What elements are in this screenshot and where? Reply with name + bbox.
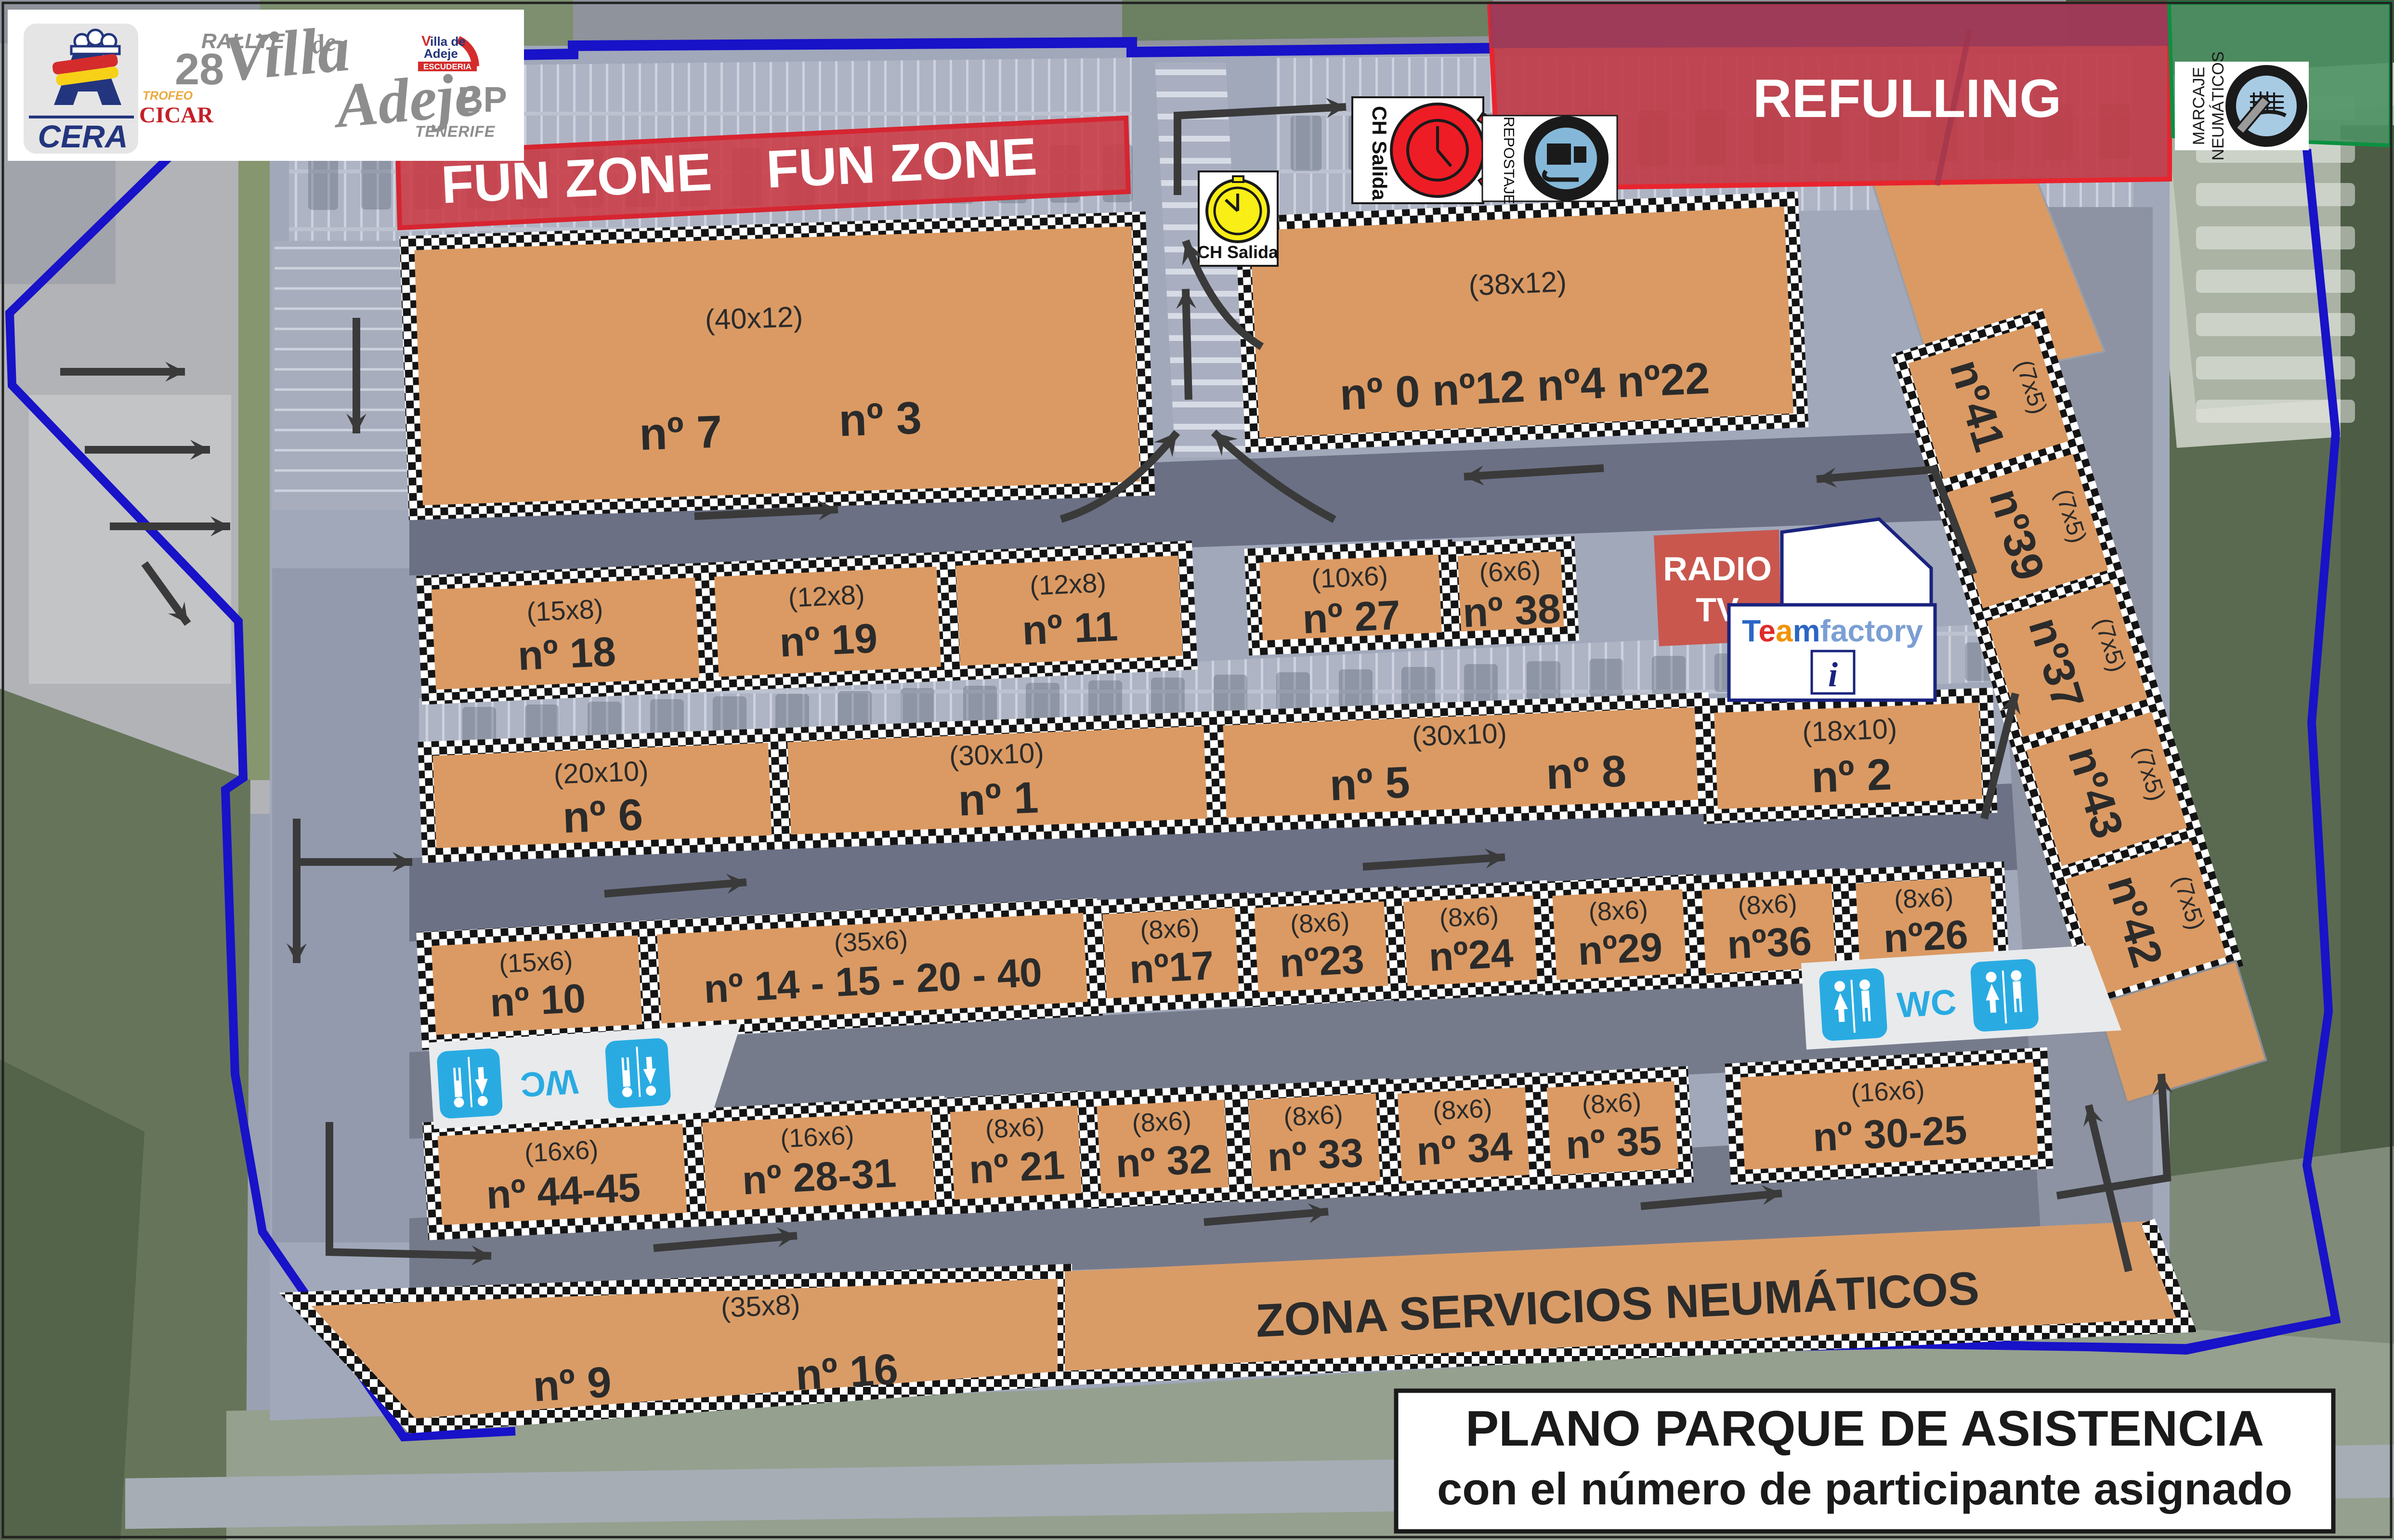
svg-text:nº 27: nº 27	[1301, 592, 1401, 642]
svg-text:i: i	[1828, 655, 1838, 694]
svg-text:(8x6): (8x6)	[1581, 1088, 1642, 1120]
svg-text:RADIO: RADIO	[1663, 550, 1772, 587]
svg-text:nº 33: nº 33	[1266, 1130, 1364, 1180]
svg-text:PLANO PARQUE DE ASISTENCIA: PLANO PARQUE DE ASISTENCIA	[1465, 1401, 2264, 1457]
svg-text:nº 34: nº 34	[1415, 1123, 1514, 1174]
svg-text:28: 28	[175, 45, 224, 94]
svg-text:BP: BP	[458, 79, 507, 119]
svg-text:(10x6): (10x6)	[1311, 560, 1388, 594]
svg-text:MARCAJE: MARCAJE	[2190, 67, 2208, 145]
svg-text:nº 32: nº 32	[1115, 1136, 1213, 1186]
svg-text:nº 28-31: nº 28-31	[741, 1150, 898, 1203]
svg-text:nº29: nº29	[1577, 924, 1663, 974]
svg-text:TENERIFE: TENERIFE	[415, 123, 496, 140]
svg-text:nº 21: nº 21	[968, 1142, 1066, 1192]
svg-text:(6x6): (6x6)	[1478, 555, 1541, 588]
svg-text:nº 38: nº 38	[1462, 586, 1562, 636]
svg-text:con el número de participante: con el número de participante asignado	[1437, 1463, 2292, 1514]
svg-text:nº 3: nº 3	[838, 392, 922, 446]
svg-text:(8x6): (8x6)	[1139, 914, 1200, 945]
svg-text:nº 19: nº 19	[778, 615, 878, 666]
svg-text:(8x6): (8x6)	[1432, 1094, 1493, 1125]
svg-text:(38x12): (38x12)	[1468, 265, 1567, 302]
svg-text:nº23: nº23	[1279, 936, 1365, 986]
svg-text:Adeje: Adeje	[424, 46, 458, 61]
svg-text:(8x6): (8x6)	[1131, 1106, 1192, 1138]
svg-text:nº 9: nº 9	[532, 1358, 613, 1411]
svg-text:(35x8): (35x8)	[720, 1289, 801, 1323]
svg-text:nº17: nº17	[1128, 942, 1215, 992]
svg-text:nº 2: nº 2	[1810, 750, 1892, 802]
svg-text:de: de	[309, 27, 339, 60]
svg-text:nº26: nº26	[1883, 912, 1969, 961]
svg-text:(20x10): (20x10)	[553, 755, 649, 790]
svg-text:Teamfactory: Teamfactory	[1742, 613, 1923, 648]
svg-text:(30x10): (30x10)	[949, 737, 1045, 772]
svg-text:(15x8): (15x8)	[526, 593, 603, 627]
svg-text:REPOSTAJE: REPOSTAJE	[1501, 117, 1518, 204]
svg-text:nº 5: nº 5	[1329, 758, 1411, 810]
svg-text:ESCUDERIA: ESCUDERIA	[423, 62, 471, 71]
svg-text:(30x10): (30x10)	[1412, 718, 1507, 753]
svg-text:(40x12): (40x12)	[705, 300, 804, 336]
svg-text:(35x6): (35x6)	[833, 925, 908, 958]
svg-text:nº 1: nº 1	[957, 773, 1039, 825]
svg-text:nº 10: nº 10	[489, 975, 587, 1025]
svg-text:(12x8): (12x8)	[787, 579, 865, 613]
svg-text:nº24: nº24	[1427, 930, 1514, 980]
svg-text:CH Salida: CH Salida	[1368, 106, 1391, 201]
svg-text:REFULLING: REFULLING	[1753, 68, 2062, 129]
svg-text:nº 7: nº 7	[639, 406, 723, 460]
svg-text:(12x8): (12x8)	[1029, 567, 1107, 601]
svg-text:(8x6): (8x6)	[1588, 895, 1648, 927]
svg-text:nº 30-25: nº 30-25	[1812, 1107, 1968, 1160]
svg-text:(15x6): (15x6)	[498, 946, 574, 979]
svg-text:(16x6): (16x6)	[524, 1135, 599, 1168]
svg-text:(8x6): (8x6)	[1894, 882, 1954, 914]
svg-text:(8x6): (8x6)	[984, 1112, 1045, 1144]
svg-text:nº 18: nº 18	[517, 628, 617, 679]
svg-text:(16x6): (16x6)	[1850, 1075, 1925, 1108]
svg-text:nº 8: nº 8	[1545, 746, 1627, 798]
svg-text:nº 44-45: nº 44-45	[485, 1164, 642, 1217]
svg-text:nº 11: nº 11	[1021, 603, 1119, 654]
svg-text:nº 35: nº 35	[1565, 1118, 1662, 1168]
svg-text:(8x6): (8x6)	[1290, 907, 1350, 939]
svg-text:nº36: nº36	[1726, 918, 1813, 967]
svg-text:CH Salida: CH Salida	[1197, 242, 1279, 262]
svg-text:(18x10): (18x10)	[1802, 713, 1897, 748]
svg-text:WC: WC	[1896, 982, 1958, 1025]
svg-text:NEUMÁTICOS: NEUMÁTICOS	[2209, 52, 2227, 161]
svg-text:(16x6): (16x6)	[780, 1121, 855, 1154]
svg-text:(8x6): (8x6)	[1737, 889, 1798, 921]
svg-text:CICAR: CICAR	[139, 103, 214, 128]
svg-text:WC: WC	[519, 1062, 579, 1104]
svg-text:(8x6): (8x6)	[1439, 901, 1500, 933]
svg-text:(8x6): (8x6)	[1283, 1100, 1344, 1132]
svg-text:nº 6: nº 6	[562, 790, 643, 842]
svg-text:nº 16: nº 16	[794, 1345, 900, 1400]
svg-text:CERA: CERA	[38, 118, 128, 154]
